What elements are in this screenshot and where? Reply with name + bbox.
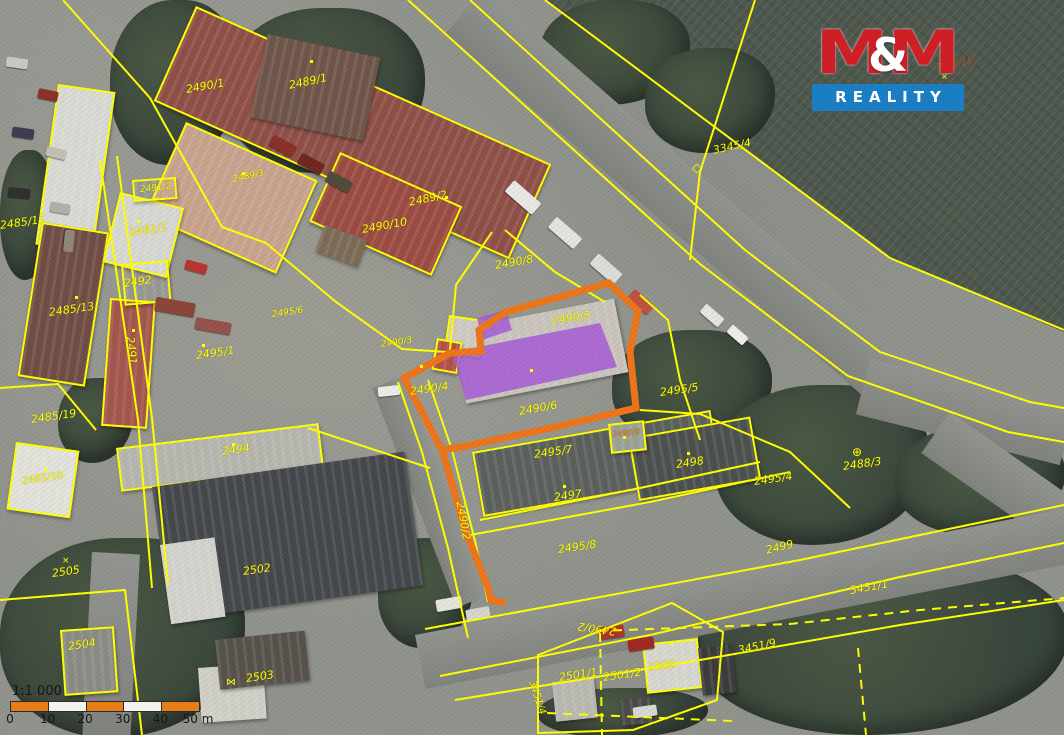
parcel-label-2500: 2500	[647, 658, 676, 673]
parcel-label-2495-5: 2495/5	[659, 382, 699, 398]
parcel-label-3451-1: 3451/1	[849, 578, 889, 596]
parcel-label-2490-1: 2490/1	[185, 77, 225, 95]
map-symbol-icon: ×	[62, 557, 70, 566]
scale-tick-label: 40	[153, 712, 168, 726]
parcel-label-2499: 2499	[765, 538, 795, 555]
parcel-label-2490-2: 2490/2	[577, 621, 617, 637]
parcel-label-2495-7: 2495/7	[533, 444, 573, 460]
parcel-label-2494: 2494	[221, 442, 250, 457]
scale-tick-label: 50 m	[183, 712, 214, 726]
parcel-marker-dot	[44, 468, 47, 471]
logo-reality-text: REALITY	[812, 84, 964, 111]
parcel-label-2489-2: 2489/2	[408, 189, 448, 208]
scale-tick-label: 20	[78, 712, 93, 726]
scale-bar-segment	[87, 702, 125, 711]
parcel-label-2485-13: 2485/13	[48, 301, 95, 318]
parcel-marker-dot	[445, 196, 448, 199]
scale-tick-label: 30	[115, 712, 130, 726]
parcel-label-2485-10: 2485/10	[21, 471, 64, 487]
parcel-marker-dot	[670, 642, 673, 645]
parcel-label-2495-4: 2495/4	[753, 471, 793, 487]
parcel-marker-dot	[137, 220, 140, 223]
parcel-label-2498: 2498	[675, 455, 704, 470]
parcel-label-2489-3: 2489/3	[232, 170, 265, 185]
scale-tick-label: 0	[6, 712, 14, 726]
scale-bar-segments	[10, 701, 200, 712]
parcel-marker-dot	[563, 485, 566, 488]
parcel-label-2490-8: 2490/8	[494, 253, 534, 271]
map-scale-bar: 1:1 000 01020304050 m	[8, 684, 248, 735]
parcel-label-2505: 2505	[51, 564, 80, 579]
parcel-marker-dot	[242, 172, 245, 175]
parcel-label-2491: 2491	[125, 336, 139, 365]
parcel-label-2488-3: 2488/3	[842, 456, 882, 472]
parcel-label-2490-9: 2490/9	[612, 428, 641, 439]
parcel-marker-dot	[202, 344, 205, 347]
parcel-label-2495-6: 2495/6	[271, 307, 304, 320]
parcel-label-2489-1: 2489/1	[288, 72, 328, 91]
aerial-map-image[interactable]: 2490/12489/12489/32489/22490/102490/8249…	[0, 0, 1064, 735]
parcel-label-3451-9: 3451/9	[737, 637, 777, 656]
parcel-label-2490-5: 2490/5	[551, 310, 591, 326]
parcel-label-2490-2: 2490/2	[455, 501, 473, 541]
parcel-marker-dot	[310, 60, 313, 63]
parcel-marker-dot	[420, 365, 423, 368]
logo-mm-text: M & M	[812, 26, 964, 88]
parcel-label-2485-19: 2485/19	[30, 408, 77, 425]
scale-bar-segment	[124, 702, 162, 711]
parcel-label-3345-4: 3345/4	[712, 137, 752, 156]
parcel-label-2495-8: 2495/8	[557, 539, 597, 555]
parcel-label-2490-4: 2490/4	[409, 381, 449, 397]
parcel-label-2503: 2503	[245, 669, 274, 684]
parcel-label-2491-2: 2491/2	[140, 183, 172, 195]
parcel-label-2495-1: 2495/1	[195, 345, 235, 361]
mm-reality-logo: M & M REALITY	[812, 26, 964, 111]
map-symbol-icon: ⊕	[852, 446, 862, 458]
parcel-marker-dot	[530, 369, 533, 372]
parcel-label-2497: 2497	[553, 488, 582, 503]
scale-bar-segment	[162, 702, 199, 711]
scale-ratio-label: 1:1 000	[12, 684, 62, 699]
parcel-label-2490-6: 2490/6	[518, 399, 558, 417]
parcel-marker-dot	[687, 452, 690, 455]
parcel-marker-dot	[623, 436, 626, 439]
parcel-marker-dot	[232, 443, 235, 446]
scale-bar-segment	[49, 702, 87, 711]
scale-bar-segment	[11, 702, 49, 711]
scale-tick-label: 10	[40, 712, 55, 726]
parcel-label-2504: 2504	[67, 637, 96, 652]
parcel-label-2490-10: 2490/10	[361, 216, 408, 235]
parcel-marker-dot	[75, 296, 78, 299]
logo-ampersand-icon: &	[868, 32, 908, 78]
parcel-label-2501-2: 2501/2	[602, 667, 642, 683]
parcel-label-3451-4: 3451/4	[526, 679, 546, 716]
parcel-label-2485-15: 2485/15	[0, 214, 46, 231]
map-symbol-icon: ◇	[692, 162, 702, 175]
parcel-label-2490-3: 2490/3	[380, 337, 413, 350]
parcel-marker-dot	[132, 329, 135, 332]
parcel-label-2492: 2492	[123, 274, 152, 289]
parcel-label-2501-1: 2501/1	[558, 667, 598, 683]
parcel-label-2491-1: 2491/1	[128, 222, 168, 238]
parcel-label-2502: 2502	[242, 562, 271, 577]
